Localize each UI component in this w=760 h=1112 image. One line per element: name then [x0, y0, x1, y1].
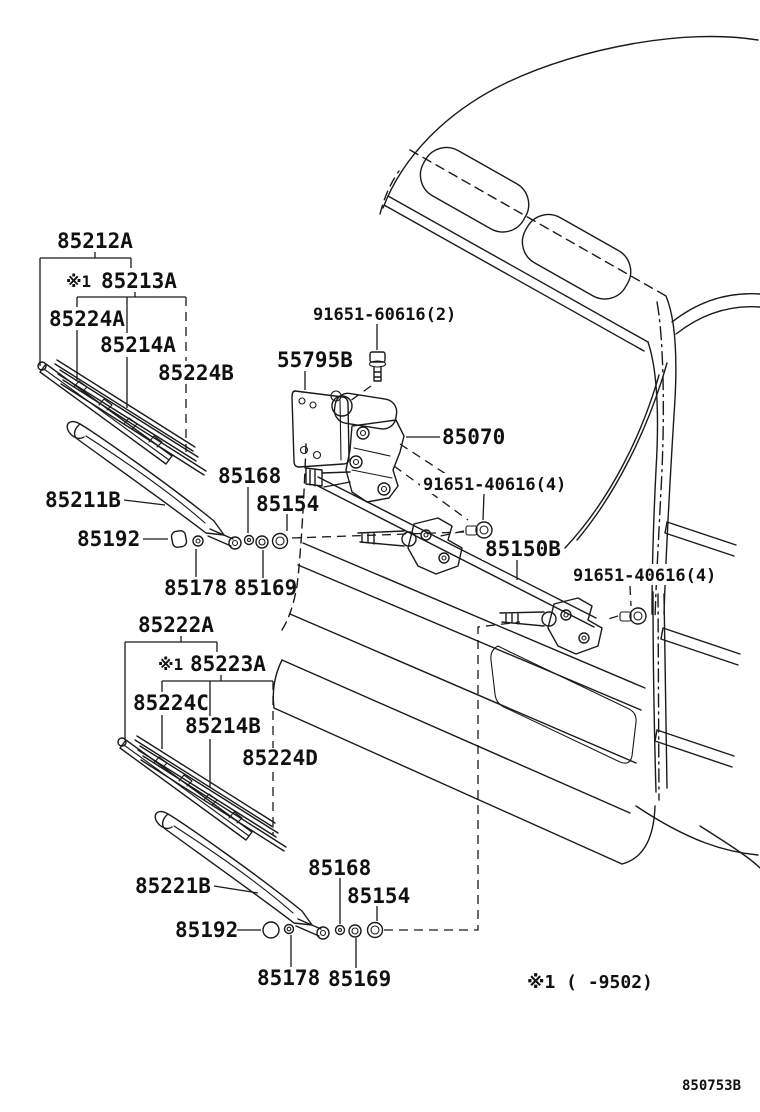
label-arm-b: 85221B — [135, 874, 211, 898]
label-blade-a-backing1: 85224A — [49, 307, 125, 331]
part-labels: 85212A ※1 85213A 85224A 85214A 85224B 85… — [45, 229, 741, 1094]
wiper-motor-85070 — [306, 391, 404, 502]
label-cap-a: 85192 — [77, 527, 140, 551]
label-washer-b: 85178 — [257, 966, 320, 990]
label-piece-b: 85168 — [308, 856, 371, 880]
label-spacer-a: 85169 — [234, 576, 297, 600]
label-arm-a: 85211B — [45, 488, 121, 512]
label-bracket-55795B: 55795B — [277, 348, 353, 372]
label-blade-b-sub: 85223A — [190, 652, 266, 676]
label-pivot-bolt-2: 91651-40616(4) — [573, 566, 716, 586]
piece-icon-lower — [336, 926, 345, 935]
pivot-bolt-icon-2 — [620, 608, 646, 624]
label-spacer-b: 85169 — [328, 967, 391, 991]
label-blade-a-assy: 85212A — [57, 229, 133, 253]
label-piece-a: 85168 — [218, 464, 281, 488]
label-washer-a: 85178 — [164, 576, 227, 600]
label-blade-b-backing2: 85224D — [242, 746, 318, 770]
motor-bracket-55795B — [292, 391, 349, 467]
vehicle-body-outline — [273, 36, 760, 868]
label-grommet-b: 85154 — [347, 884, 410, 908]
grommet-icon-upper — [273, 534, 288, 549]
parts-diagram-page: 85212A ※1 85213A 85224A 85214A 85224B 85… — [0, 0, 760, 1112]
pivot-shaft-b — [500, 598, 602, 654]
motor-screw-icon — [370, 352, 386, 381]
label-link-85150B: 85150B — [485, 537, 561, 561]
label-motor-screws: 91651-60616(2) — [313, 305, 456, 325]
washer-icon-upper — [193, 536, 203, 546]
note-mark-blade-b: ※1 — [158, 655, 183, 674]
label-motor-85070: 85070 — [442, 425, 505, 449]
small-parts-row-lower — [263, 922, 383, 939]
grommet-icon-lower — [368, 923, 383, 938]
piece-icon-upper — [245, 536, 254, 545]
washer-icon-lower — [285, 925, 294, 934]
label-blade-b-backing1: 85224C — [133, 691, 209, 715]
label-blade-b-rubber: 85214B — [185, 714, 261, 738]
label-blade-a-backing2: 85224B — [158, 361, 234, 385]
pivot-nut-icon-upper — [229, 537, 241, 549]
footnote-applicability: ※1 ( -9502) — [527, 972, 653, 993]
roof-window-2 — [514, 206, 640, 308]
label-grommet-a: 85154 — [256, 492, 319, 516]
label-blade-a-sub: 85213A — [101, 269, 177, 293]
spacer-icon-lower — [349, 925, 361, 937]
pivot-bolt-icon-1 — [466, 522, 492, 538]
label-pivot-bolt-1: 91651-40616(4) — [423, 475, 566, 495]
note-mark-blade-a: ※1 — [66, 272, 91, 291]
arm-cap-icon-upper — [171, 530, 188, 548]
arm-cap-icon-lower — [263, 922, 279, 938]
label-blade-a-rubber: 85214A — [100, 333, 176, 357]
pivot-nut-icon-lower — [317, 927, 329, 939]
label-blade-b-assy: 85222A — [138, 613, 214, 637]
label-cap-b: 85192 — [175, 918, 238, 942]
small-parts-row-upper — [171, 530, 288, 549]
spacer-icon-upper — [256, 536, 268, 548]
pivot-shaft-a — [358, 518, 462, 574]
roof-window-1 — [412, 139, 538, 241]
diagram-code: 850753B — [682, 1078, 741, 1094]
rear-wiper-parts-diagram: 85212A ※1 85213A 85224A 85214A 85224B 85… — [0, 0, 760, 1112]
